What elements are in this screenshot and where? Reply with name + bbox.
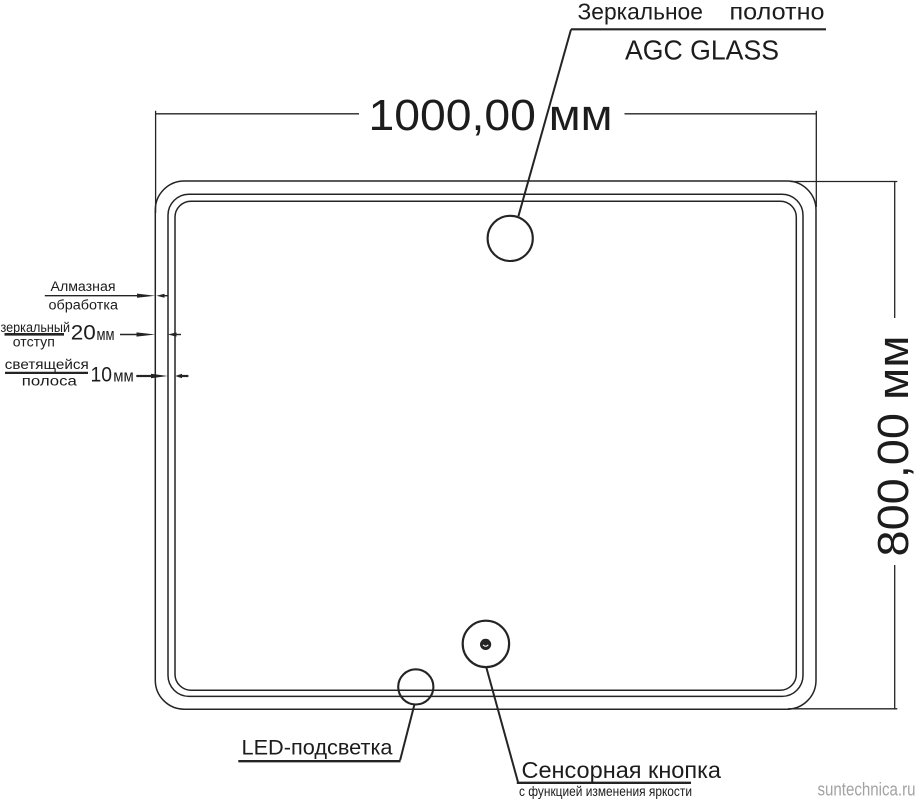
svg-text:полотно: полотно xyxy=(730,0,825,24)
svg-text:suntechnica.ru: suntechnica.ru xyxy=(818,779,916,799)
svg-text:Зеркальное: Зеркальное xyxy=(578,0,703,24)
svg-text:мм: мм xyxy=(97,326,115,344)
svg-text:Сенсорная кнопка: Сенсорная кнопка xyxy=(522,757,722,783)
svg-text:Алмазная: Алмазная xyxy=(51,279,116,294)
svg-text:светящейся: светящейся xyxy=(5,357,89,372)
svg-text:800,00 мм: 800,00 мм xyxy=(870,336,918,557)
svg-text:мм: мм xyxy=(113,367,134,385)
svg-text:1000,00 мм: 1000,00 мм xyxy=(369,92,613,140)
svg-text:20: 20 xyxy=(71,322,96,345)
svg-text:с функцией изменения яркости: с функцией изменения яркости xyxy=(519,783,692,799)
svg-text:LED-подсветка: LED-подсветка xyxy=(242,735,393,759)
svg-text:AGC GLASS: AGC GLASS xyxy=(625,35,779,66)
svg-text:зеркальный: зеркальный xyxy=(1,320,71,335)
svg-text:обработка: обработка xyxy=(49,298,119,313)
svg-text:полоса: полоса xyxy=(22,374,78,389)
svg-text:отступ: отступ xyxy=(13,335,55,350)
svg-text:10: 10 xyxy=(91,363,113,386)
